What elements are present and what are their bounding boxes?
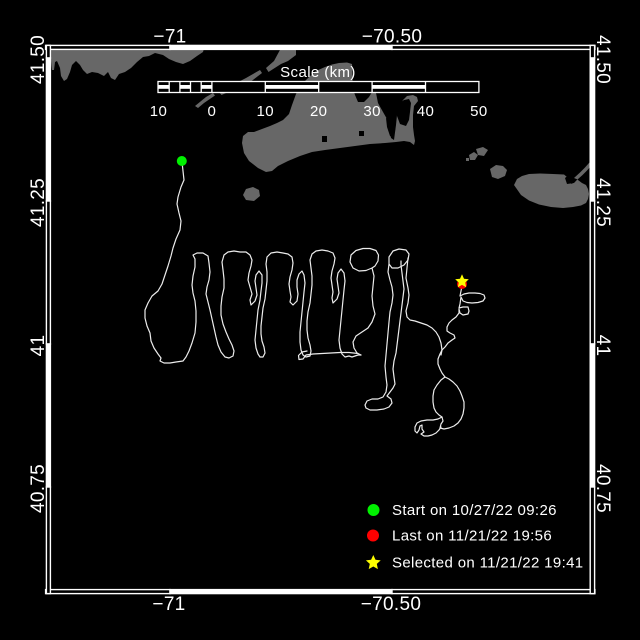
svg-text:30: 30 [363, 103, 381, 120]
svg-text:41: 41 [28, 335, 49, 357]
svg-text:0: 0 [208, 103, 217, 120]
svg-text:41.50: 41.50 [28, 35, 49, 84]
svg-text:10: 10 [257, 103, 275, 120]
svg-text:Start on 10/27/22 09:26: Start on 10/27/22 09:26 [392, 502, 557, 519]
svg-text:41.50: 41.50 [592, 35, 613, 84]
svg-text:40.75: 40.75 [28, 464, 49, 513]
svg-text:Scale (km): Scale (km) [280, 64, 356, 81]
svg-text:Selected on 11/21/22 19:41: Selected on 11/21/22 19:41 [392, 555, 583, 572]
svg-text:20: 20 [310, 103, 328, 120]
svg-text:−70.50: −70.50 [362, 27, 422, 48]
svg-text:50: 50 [470, 103, 488, 120]
svg-text:40: 40 [417, 103, 435, 120]
svg-text:−71: −71 [153, 27, 186, 48]
svg-text:Last on 11/21/22 19:56: Last on 11/21/22 19:56 [392, 528, 552, 545]
svg-text:10: 10 [150, 103, 168, 120]
svg-text:41.25: 41.25 [28, 178, 49, 227]
svg-text:−70.50: −70.50 [361, 594, 421, 615]
svg-text:41.25: 41.25 [592, 178, 613, 227]
svg-text:41: 41 [592, 335, 613, 357]
svg-text:−71: −71 [152, 594, 185, 615]
svg-text:40.75: 40.75 [592, 464, 613, 513]
